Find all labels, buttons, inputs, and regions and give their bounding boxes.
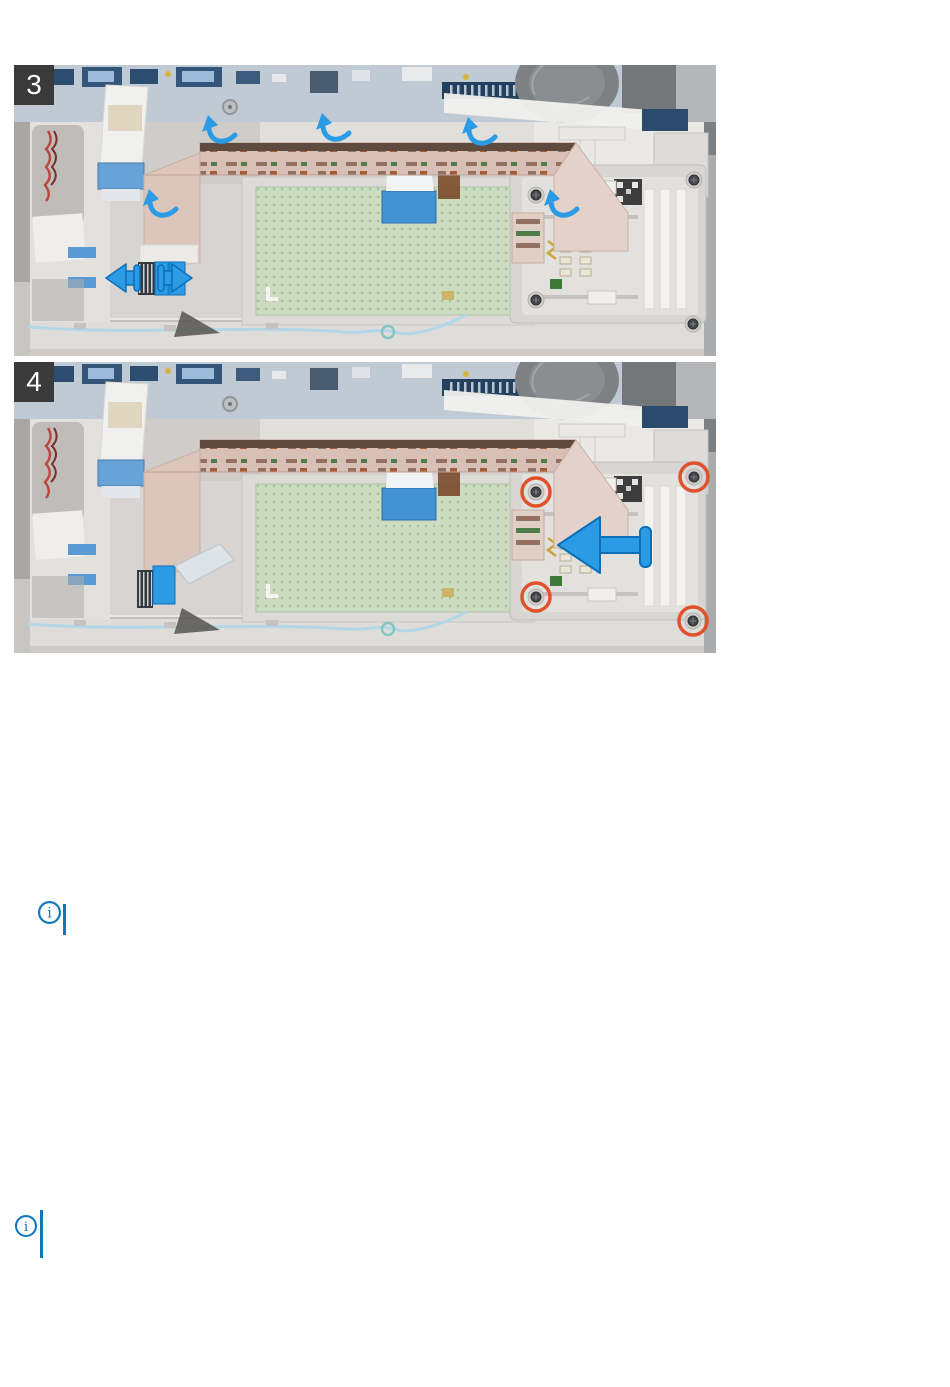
svg-text:i: i (47, 906, 52, 922)
note-divider-bar (40, 1210, 43, 1258)
manual-page: 3 (0, 0, 950, 1387)
laptop-internal-photo-step-3 (14, 65, 716, 356)
step-number: 3 (26, 71, 42, 99)
sensor-board-cable (98, 382, 148, 498)
note-callout: i (14, 1210, 49, 1258)
note-divider-bar (63, 904, 66, 935)
laptop-internal-photo-step-4 (14, 362, 716, 653)
touchpad (242, 458, 534, 622)
speaker-area (30, 419, 110, 619)
sensor-board-cable (98, 85, 148, 201)
step-number: 4 (26, 368, 42, 396)
step-4-figure: 4 (14, 362, 716, 653)
info-icon: i (37, 900, 62, 925)
svg-text:i: i (24, 1220, 28, 1235)
note-callout: i (37, 900, 72, 935)
info-icon: i (14, 1214, 38, 1238)
speaker-area (30, 122, 110, 322)
step-3-figure: 3 (14, 65, 716, 356)
touchpad (242, 161, 534, 325)
step-number-badge: 3 (14, 65, 54, 105)
step-number-badge: 4 (14, 362, 54, 402)
